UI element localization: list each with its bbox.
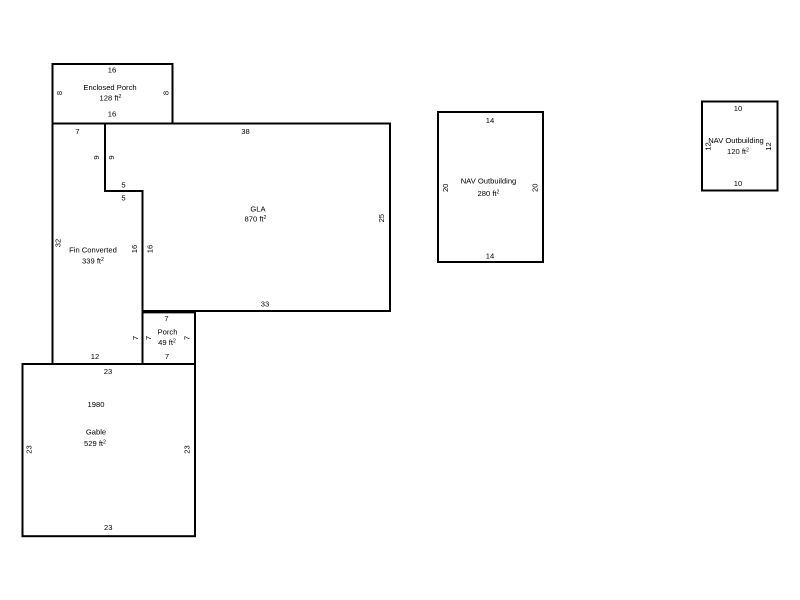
svg-text:7: 7	[165, 352, 169, 361]
svg-text:870 ft2: 870 ft2	[245, 215, 267, 224]
svg-text:1980: 1980	[88, 400, 105, 409]
svg-text:23: 23	[183, 445, 192, 453]
svg-text:23: 23	[25, 445, 34, 453]
svg-text:120 ft2: 120 ft2	[727, 147, 749, 156]
svg-text:38: 38	[241, 127, 249, 136]
svg-text:7: 7	[75, 127, 79, 136]
svg-text:7: 7	[144, 336, 153, 340]
svg-text:16: 16	[108, 66, 116, 75]
svg-text:GLA: GLA	[250, 205, 266, 214]
svg-text:16: 16	[108, 110, 116, 119]
svg-text:128 ft2: 128 ft2	[100, 94, 122, 103]
svg-text:NAV Outbuilding: NAV Outbuilding	[708, 136, 764, 145]
svg-text:7: 7	[164, 314, 168, 323]
svg-text:25: 25	[377, 214, 386, 222]
svg-text:32: 32	[54, 239, 63, 247]
svg-text:Porch: Porch	[158, 327, 178, 336]
svg-text:10: 10	[734, 179, 742, 188]
svg-text:8: 8	[162, 91, 171, 95]
svg-text:23: 23	[104, 367, 112, 376]
svg-text:9: 9	[107, 155, 116, 159]
svg-text:280 ft2: 280 ft2	[478, 189, 500, 198]
svg-text:8: 8	[55, 91, 64, 95]
svg-text:7: 7	[131, 336, 140, 340]
svg-text:20: 20	[441, 184, 450, 192]
svg-text:9: 9	[92, 155, 101, 159]
svg-text:7: 7	[182, 336, 191, 340]
svg-text:14: 14	[486, 116, 494, 125]
svg-text:529 ft2: 529 ft2	[84, 439, 106, 448]
svg-text:5: 5	[121, 181, 125, 190]
svg-text:5: 5	[121, 194, 125, 203]
svg-text:NAV Outbuilding: NAV Outbuilding	[461, 176, 517, 185]
svg-text:339 ft2: 339 ft2	[82, 257, 104, 266]
svg-text:Gable: Gable	[86, 428, 106, 437]
svg-text:10: 10	[734, 104, 742, 113]
svg-text:16: 16	[130, 245, 139, 253]
svg-text:20: 20	[531, 184, 540, 192]
svg-text:33: 33	[261, 300, 269, 309]
svg-text:Fin Converted: Fin Converted	[69, 246, 117, 255]
svg-text:16: 16	[146, 245, 155, 253]
svg-text:12: 12	[91, 352, 99, 361]
svg-text:Enclosed Porch: Enclosed Porch	[83, 83, 136, 92]
svg-text:12: 12	[703, 142, 712, 150]
svg-text:23: 23	[104, 523, 112, 532]
svg-text:14: 14	[486, 251, 494, 260]
svg-text:12: 12	[764, 142, 773, 150]
